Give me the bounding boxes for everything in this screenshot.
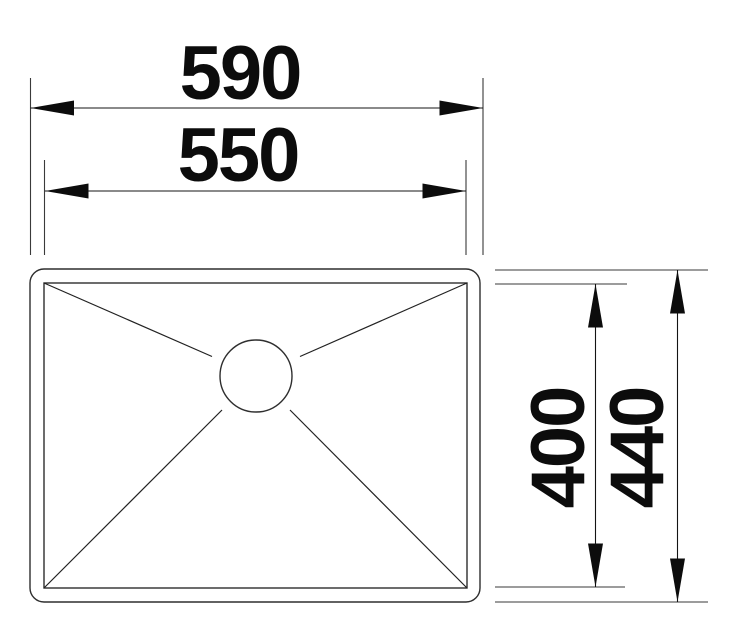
label-outer-width: 590 [180, 31, 301, 116]
label-inner-width: 550 [178, 113, 299, 198]
label-outer-depth: 440 [595, 388, 680, 509]
bowl-diagonal-bottom-left [44, 410, 222, 588]
sink-outline-group [30, 269, 480, 602]
arrow-outer-depth-top [670, 270, 685, 314]
drain-circle [220, 340, 292, 412]
arrow-inner-width-left [45, 184, 89, 199]
arrow-outer-depth-bottom [670, 559, 685, 603]
label-inner-depth: 400 [516, 388, 601, 509]
bowl-diagonal-top-right [300, 283, 467, 357]
bowl-diagonal-bottom-right [290, 410, 467, 588]
arrowheads-group [31, 101, 686, 603]
arrow-inner-width-right [423, 184, 467, 199]
dimension-lines-group [31, 108, 678, 602]
arrow-inner-depth-bottom [588, 544, 603, 588]
bowl-diagonal-top-left [44, 283, 212, 357]
drawing-sheet: 590 550 400 440 [0, 0, 747, 638]
arrow-inner-depth-top [588, 284, 603, 328]
sink-technical-drawing: 590 550 400 440 [0, 0, 747, 638]
arrow-outer-width-right [440, 101, 484, 116]
arrow-outer-width-left [31, 101, 75, 116]
sink-inner-bowl [44, 283, 467, 588]
extension-lines-group [31, 78, 709, 602]
sink-outer-rim [30, 269, 480, 602]
